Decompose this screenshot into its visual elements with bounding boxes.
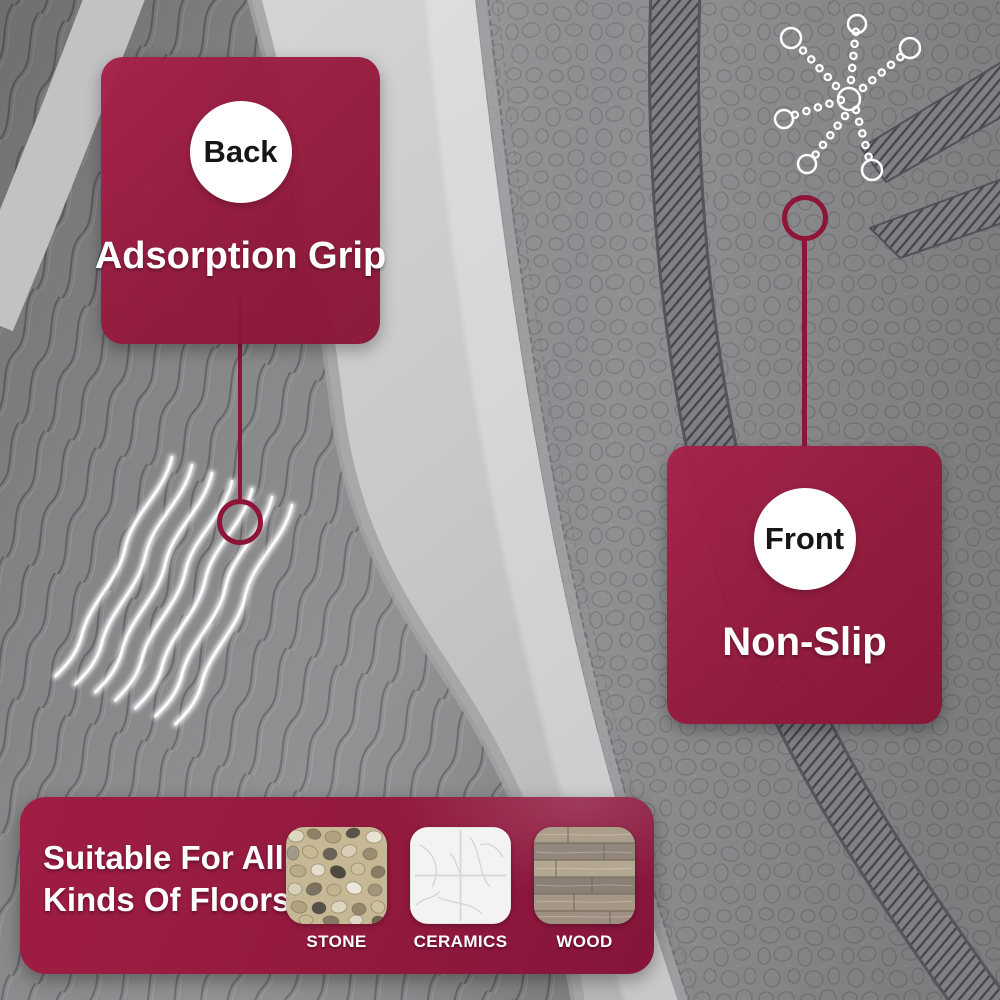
floor-suitability-banner: Suitable For All Kinds Of Floors: [20, 797, 654, 974]
ceramics-texture-swatch [410, 827, 511, 924]
back-feature-label: Adsorption Grip [95, 235, 386, 278]
target-ring-icon [217, 499, 263, 545]
back-badge: Back [190, 101, 292, 203]
banner-heading-line2: Kinds Of Floors: [43, 879, 302, 921]
floor-label-stone: STONE [306, 932, 366, 952]
product-infographic: Back Adsorption Grip Front Non-Slip Suit… [0, 0, 1000, 1000]
floor-label-wood: WOOD [556, 932, 612, 952]
floor-label-ceramics: CERAMICS [414, 932, 508, 952]
floor-type-item-stone: STONE [286, 827, 387, 952]
front-callout-card: Front Non-Slip [667, 446, 942, 724]
target-ring-icon [782, 195, 828, 241]
back-callout-card: Back Adsorption Grip [101, 57, 380, 344]
banner-heading: Suitable For All Kinds Of Floors: [43, 837, 302, 921]
wood-texture-swatch [534, 827, 635, 924]
floor-type-list: STONE [286, 827, 635, 952]
banner-heading-line1: Suitable For All [43, 837, 302, 879]
front-connector-line [802, 238, 807, 448]
front-badge: Front [754, 488, 856, 590]
floor-type-item-wood: WOOD [534, 827, 635, 952]
stone-texture-swatch [286, 827, 387, 924]
front-feature-label: Non-Slip [722, 620, 886, 665]
floor-type-item-ceramics: CERAMICS [410, 827, 511, 952]
